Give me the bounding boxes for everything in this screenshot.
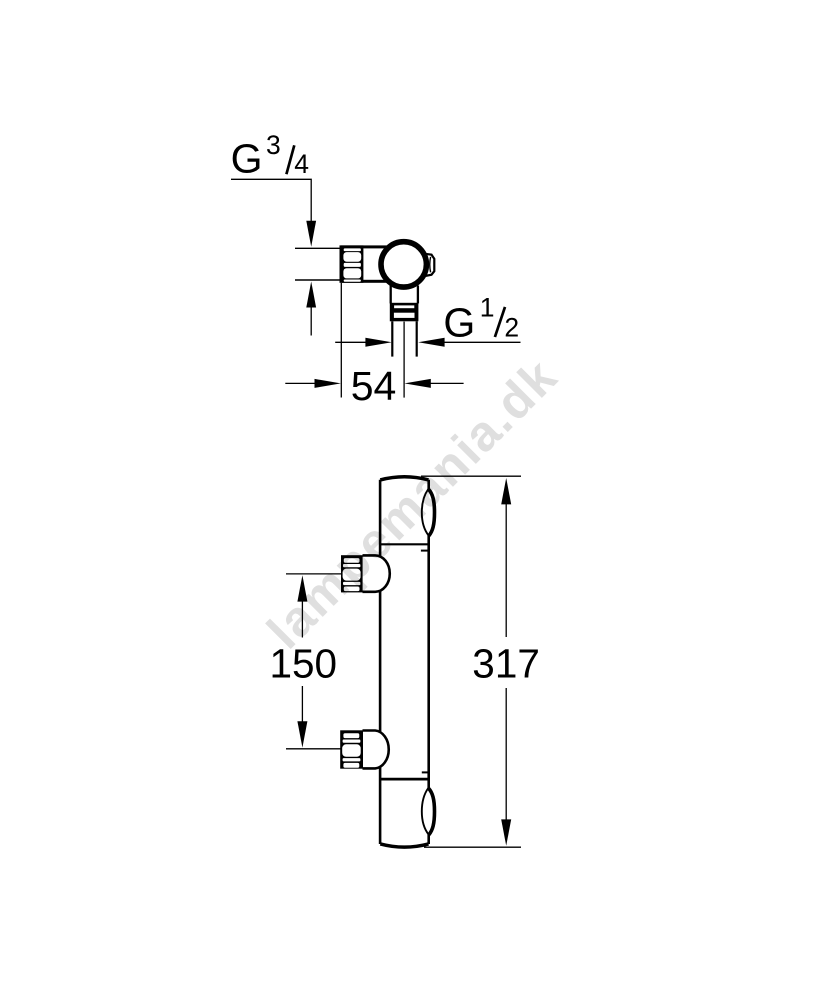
svg-text:54: 54 [351,363,397,409]
svg-text:4: 4 [294,149,309,179]
svg-text:2: 2 [504,312,519,342]
svg-text:3: 3 [266,130,281,160]
svg-text:1: 1 [480,293,495,323]
svg-text:G: G [231,136,263,182]
svg-text:317: 317 [472,641,540,687]
svg-text:G: G [443,299,475,345]
